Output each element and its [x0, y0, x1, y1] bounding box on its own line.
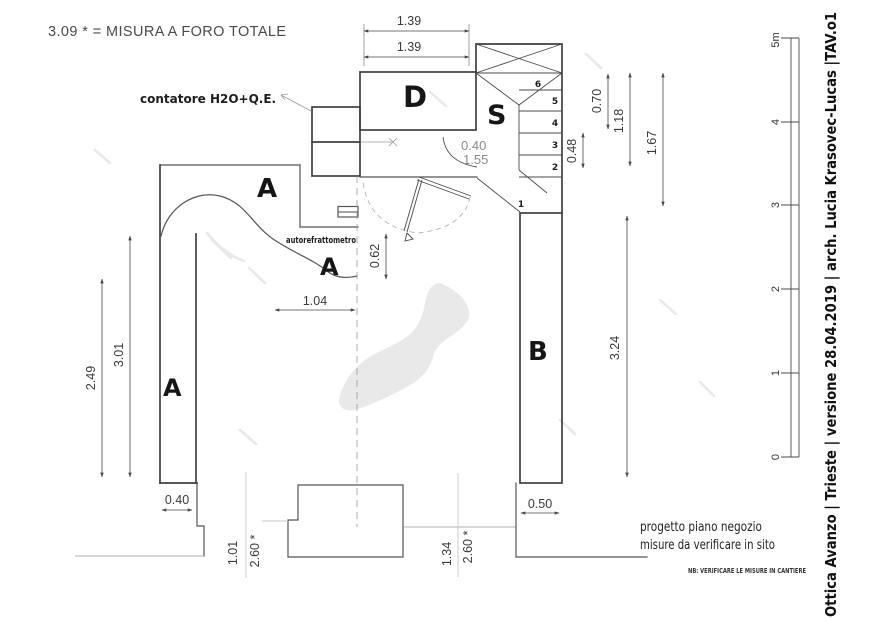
- dim-301: 3.01: [112, 343, 126, 367]
- room-label-s: S: [487, 100, 506, 131]
- room-label-a-left: A: [163, 374, 182, 402]
- note-line2: misure da verificare in sito: [640, 538, 775, 553]
- step-number-1: 1: [518, 200, 524, 210]
- note-nb: NB: VERIFICARE LE MISURE IN CANTIERE: [688, 567, 806, 575]
- storefront: [75, 472, 647, 578]
- dim-101-window: 1.01: [226, 541, 240, 565]
- dim-324: 3.24: [608, 336, 622, 360]
- step-number-5: 5: [552, 97, 558, 107]
- dim-134-window: 1.34: [440, 542, 454, 566]
- dim-139-inner: 1.39: [397, 40, 421, 54]
- dim-167: 1.67: [645, 131, 659, 155]
- note-line1: progetto piano negozio: [640, 520, 762, 535]
- step-number-4: 4: [552, 119, 558, 129]
- room-label-a-counter: A: [320, 253, 339, 281]
- step-number-6: 6: [535, 80, 541, 90]
- facade-right-block: [516, 483, 647, 557]
- display-window-left: [288, 485, 403, 557]
- dim-260-right-window: 2.60 *: [461, 531, 475, 564]
- room-label-d: D: [403, 80, 427, 114]
- dim-260-left-window: 2.60 *: [248, 535, 262, 568]
- step-number-2: 2: [552, 163, 558, 173]
- page-title: 3.09 * = MISURA A FORO TOTALE: [48, 24, 286, 40]
- scale-label-0: 0: [770, 454, 782, 460]
- door-swing-pointer: [405, 233, 413, 241]
- dim-door-width: 0.40: [461, 138, 486, 153]
- contatore-label: contatore H2O+Q.E.: [140, 92, 276, 106]
- stair-cross-x: [476, 44, 562, 73]
- scale-bar: 0 1 2 3 4 5m: [770, 32, 799, 460]
- scale-label-4: 4: [770, 119, 782, 125]
- door-leaf-left: [404, 179, 422, 232]
- scale-label-2: 2: [770, 286, 782, 292]
- titleblock-strip: Ottica Avanzo | Trieste | versione 28.04…: [822, 12, 841, 617]
- door-leaf-right: [417, 177, 471, 199]
- stair-winder-edges: [477, 170, 547, 212]
- scale-bar-ticks: [781, 38, 799, 457]
- contatore-leader-line: [281, 94, 311, 111]
- dim-249: 2.49: [84, 366, 98, 390]
- dim-104: 1.04: [303, 294, 327, 308]
- dim-118: 1.18: [612, 109, 626, 133]
- room-label-b: B: [528, 337, 548, 367]
- dim-050-pillar: 0.50: [528, 497, 552, 511]
- step-number-3: 3: [552, 141, 558, 151]
- scale-label-3: 3: [770, 202, 782, 208]
- scale-label-1: 1: [770, 370, 782, 376]
- floor-plan-page: 0 1 2 3 4 5m 3.09 * = MISURA A FORO TOTA…: [0, 0, 880, 622]
- door-swing-arc: [363, 183, 470, 233]
- floor-shadow-blob: [339, 283, 469, 411]
- scale-label-5m: 5m: [770, 32, 782, 47]
- autorefrattometro-label: autorefrattometro: [286, 236, 356, 246]
- dim-040-pillar: 0.40: [165, 493, 189, 507]
- floor-plan-drawing: 0 1 2 3 4 5m 3.09 * = MISURA A FORO TOTA…: [0, 0, 880, 622]
- room-label-a-top: A: [257, 174, 277, 204]
- facade-left-step: [197, 483, 204, 556]
- dim-door-height: 1.55: [463, 152, 488, 167]
- dim-062: 0.62: [368, 244, 382, 268]
- dim-048: 0.48: [565, 139, 579, 163]
- dim-070: 0.70: [590, 89, 604, 113]
- scale-bar-rails: [791, 38, 799, 457]
- dim-139-outer: 1.39: [397, 14, 421, 28]
